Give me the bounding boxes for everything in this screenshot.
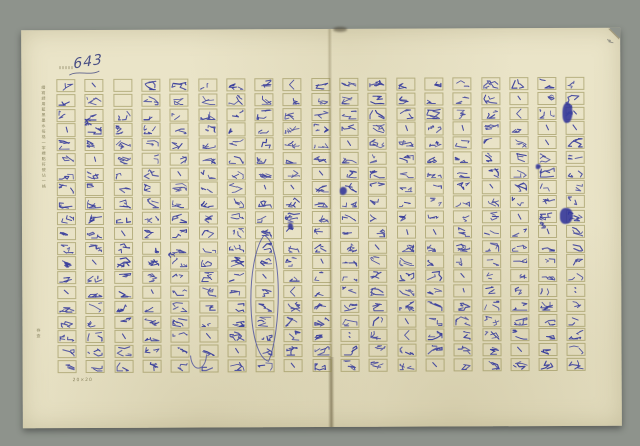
handwritten-char <box>454 123 471 134</box>
handwritten-char <box>58 272 75 283</box>
char-cell <box>226 78 245 91</box>
handwritten-char <box>86 183 103 194</box>
text-column <box>141 79 161 375</box>
char-cell <box>255 270 274 283</box>
handwritten-char <box>86 139 103 150</box>
char-cell <box>199 256 218 269</box>
handwritten-char <box>114 198 131 209</box>
handwritten-char <box>539 167 556 178</box>
handwritten-char <box>538 78 555 89</box>
char-cell <box>396 78 415 91</box>
handwritten-char <box>199 212 216 223</box>
char-cell <box>85 256 104 269</box>
char-cell <box>171 315 190 328</box>
handwritten-char <box>397 93 414 104</box>
handwritten-char <box>86 198 103 209</box>
char-cell <box>86 330 105 343</box>
char-cell <box>312 196 331 209</box>
char-cell <box>368 137 387 150</box>
handwritten-char <box>426 182 443 193</box>
handwritten-char <box>58 228 75 239</box>
handwritten-char <box>256 227 273 238</box>
char-cell <box>170 286 189 299</box>
char-cell <box>284 255 303 268</box>
handwritten-char <box>369 256 386 267</box>
char-cell <box>481 92 500 105</box>
char-cell <box>369 285 388 298</box>
handwritten-char <box>59 346 76 357</box>
char-cell <box>227 344 246 357</box>
handwritten-char <box>284 138 301 149</box>
handwritten-char <box>172 316 189 327</box>
handwritten-char <box>171 198 188 209</box>
char-cell <box>86 360 105 373</box>
handwritten-char <box>285 345 302 356</box>
char-cell <box>311 93 330 106</box>
handwritten-char <box>143 154 160 165</box>
handwritten-char <box>199 183 216 194</box>
handwritten-char <box>142 109 159 120</box>
char-cell <box>312 226 331 239</box>
handwritten-char <box>511 182 528 193</box>
handwritten-char <box>483 344 500 355</box>
char-cell <box>539 358 558 371</box>
char-cell <box>198 211 217 224</box>
grid-spec-print: 20×20 <box>73 378 93 383</box>
char-cell <box>255 300 274 313</box>
char-cell <box>567 284 586 297</box>
handwritten-char <box>228 257 245 268</box>
handwritten-char <box>200 242 217 253</box>
char-cell <box>283 93 302 106</box>
handwritten-char <box>341 256 358 267</box>
char-cell <box>256 359 275 372</box>
char-cell <box>312 344 331 357</box>
handwritten-char <box>285 286 302 297</box>
char-cell <box>566 121 585 134</box>
handwritten-char <box>171 183 188 194</box>
handwritten-char <box>455 315 472 326</box>
handwritten-char <box>172 301 189 312</box>
handwritten-char <box>510 152 527 163</box>
char-cell <box>198 123 217 136</box>
char-cell <box>312 300 331 313</box>
handwritten-char <box>482 167 499 178</box>
char-cell <box>283 196 302 209</box>
char-cell <box>284 270 303 283</box>
handwritten-char <box>564 109 573 117</box>
top-crease-mark <box>333 27 347 32</box>
char-cell <box>226 93 245 106</box>
char-cell <box>226 137 245 150</box>
handwritten-char <box>115 331 132 342</box>
char-cell <box>226 123 245 136</box>
char-cell <box>227 359 246 372</box>
handwritten-char <box>284 197 301 208</box>
char-cell <box>142 300 161 313</box>
char-cell <box>510 254 529 267</box>
char-cell <box>424 92 443 105</box>
handwritten-char <box>340 79 357 90</box>
handwritten-char <box>86 243 103 254</box>
handwritten-char <box>567 137 584 148</box>
handwritten-char <box>369 227 386 238</box>
handwritten-char <box>425 108 442 119</box>
char-cell <box>255 108 274 121</box>
char-cell <box>85 79 104 92</box>
char-cell <box>425 151 444 164</box>
handwritten-char <box>539 300 556 311</box>
handwritten-char <box>200 286 217 297</box>
handwritten-char <box>398 359 415 370</box>
handwritten-char <box>199 94 216 105</box>
char-cell <box>453 225 472 238</box>
char-cell <box>425 329 444 342</box>
handwritten-char <box>455 359 472 370</box>
handwritten-char <box>398 241 415 252</box>
handwritten-char <box>312 109 329 120</box>
handwritten-char <box>284 242 301 253</box>
manuscript-sheet: 643 繕寫請用藍黑墨水每格一字標點符號佔一格 存查 20×20 <box>21 28 622 429</box>
char-cell <box>538 195 557 208</box>
handwritten-char <box>482 211 499 222</box>
handwritten-char <box>539 270 556 281</box>
handwritten-char <box>171 168 188 179</box>
handwritten-char <box>370 330 387 341</box>
char-cell <box>284 329 303 342</box>
char-cell <box>227 197 246 210</box>
char-cell <box>114 345 133 358</box>
handwritten-char <box>511 196 528 207</box>
handwritten-char <box>454 93 471 104</box>
char-cell <box>567 299 586 312</box>
handwritten-char <box>58 257 75 268</box>
char-cell <box>510 181 529 194</box>
char-cell <box>453 196 472 209</box>
text-column <box>198 78 218 374</box>
char-cell <box>369 314 388 327</box>
char-cell <box>255 167 274 180</box>
char-cell <box>312 255 331 268</box>
handwritten-char <box>114 124 131 135</box>
char-cell <box>538 240 557 253</box>
handwritten-char <box>312 153 329 164</box>
handwritten-char <box>58 139 75 150</box>
handwritten-char <box>538 221 547 229</box>
handwritten-char <box>199 109 216 120</box>
char-cell <box>171 300 190 313</box>
handwritten-char <box>284 168 301 179</box>
char-cell <box>254 78 273 91</box>
handwritten-char <box>142 124 159 135</box>
char-cell <box>510 210 529 223</box>
char-cell <box>170 108 189 121</box>
handwritten-char <box>87 331 104 342</box>
char-cell <box>170 271 189 284</box>
char-cell <box>57 286 76 299</box>
handwritten-char <box>567 181 584 192</box>
char-cell <box>142 315 161 328</box>
char-cell <box>312 270 331 283</box>
char-cell <box>454 314 473 327</box>
char-cell <box>141 123 160 136</box>
handwritten-char <box>143 228 160 239</box>
handwritten-char <box>482 226 499 237</box>
char-cell <box>57 301 76 314</box>
handwritten-char <box>86 80 103 91</box>
char-cell <box>283 108 302 121</box>
char-cell <box>369 344 388 357</box>
handwritten-char <box>426 315 443 326</box>
char-cell <box>85 227 104 240</box>
handwritten-char <box>200 360 217 371</box>
handwritten-char <box>455 300 472 311</box>
left-margin-print: 繕寫請用藍黑墨水每格一字標點符號佔一格 <box>41 85 47 220</box>
handwritten-char <box>568 344 585 355</box>
char-cell <box>171 330 190 343</box>
handwritten-char <box>567 152 584 163</box>
char-cell <box>567 328 586 341</box>
handwritten-char <box>114 154 131 165</box>
char-cell <box>255 226 274 239</box>
char-cell <box>425 225 444 238</box>
handwritten-char <box>341 315 358 326</box>
char-cell <box>57 316 76 329</box>
char-cell <box>171 359 190 372</box>
char-cell <box>227 256 246 269</box>
char-cell <box>510 240 529 253</box>
char-cell <box>283 137 302 150</box>
char-cell <box>57 153 76 166</box>
char-cell <box>113 138 132 151</box>
char-cell <box>368 166 387 179</box>
handwritten-char <box>370 286 387 297</box>
char-cell <box>341 359 360 372</box>
handwritten-char <box>398 330 415 341</box>
char-cell <box>425 314 444 327</box>
handwritten-char <box>143 316 160 327</box>
char-cell <box>397 285 416 298</box>
char-cell <box>57 197 76 210</box>
handwritten-char <box>454 108 471 119</box>
handwritten-char <box>511 359 528 370</box>
char-cell <box>255 123 274 136</box>
char-cell <box>340 196 359 209</box>
handwritten-char <box>397 153 414 164</box>
handwritten-char <box>539 93 556 104</box>
char-cell <box>481 195 500 208</box>
handwritten-char <box>255 79 272 90</box>
char-cell <box>424 107 443 120</box>
char-cell <box>368 255 387 268</box>
handwritten-char <box>143 168 160 179</box>
char-cell <box>510 343 529 356</box>
handwritten-char <box>538 213 547 221</box>
char-cell <box>453 136 472 149</box>
char-cell <box>538 121 557 134</box>
char-cell <box>284 344 303 357</box>
handwritten-char <box>313 301 330 312</box>
char-cell <box>85 197 104 210</box>
char-cell <box>482 284 501 297</box>
handwritten-char <box>482 93 499 104</box>
handwritten-char <box>568 285 585 296</box>
handwritten-char <box>167 251 176 259</box>
handwritten-char <box>568 314 585 325</box>
text-column <box>509 77 529 373</box>
char-cell <box>566 151 585 164</box>
handwritten-char <box>540 329 557 340</box>
handwritten-char <box>58 124 75 135</box>
handwritten-char <box>256 138 273 149</box>
char-cell <box>198 226 217 239</box>
char-cell <box>142 167 161 180</box>
handwritten-char <box>539 255 556 266</box>
char-cell <box>311 181 330 194</box>
char-cell <box>509 136 528 149</box>
handwritten-char <box>171 124 188 135</box>
char-cell <box>510 225 529 238</box>
char-cell <box>199 271 218 284</box>
char-cell <box>340 270 359 283</box>
char-cell <box>170 138 189 151</box>
interlinear-annotation <box>538 213 547 229</box>
handwritten-char <box>369 241 386 252</box>
char-cell <box>567 343 586 356</box>
char-cell <box>340 152 359 165</box>
char-cell <box>227 241 246 254</box>
char-cell <box>453 269 472 282</box>
char-cell <box>227 300 246 313</box>
handwritten-char <box>568 300 585 311</box>
char-cell <box>57 138 76 151</box>
char-cell <box>481 107 500 120</box>
text-column <box>170 79 190 375</box>
handwritten-char <box>114 183 131 194</box>
handwritten-char <box>227 124 244 135</box>
handwritten-char <box>369 153 386 164</box>
char-cell <box>142 330 161 343</box>
char-cell <box>255 152 274 165</box>
char-cell <box>567 269 586 282</box>
handwritten-char <box>426 256 443 267</box>
char-cell <box>199 359 218 372</box>
handwritten-char <box>228 183 245 194</box>
char-cell <box>227 270 246 283</box>
handwritten-char <box>568 255 585 266</box>
handwritten-char <box>256 94 273 105</box>
char-cell <box>312 241 331 254</box>
char-cell <box>170 152 189 165</box>
char-cell <box>368 211 387 224</box>
handwritten-char <box>341 241 358 252</box>
char-cell <box>198 93 217 106</box>
char-cell <box>397 225 416 238</box>
handwritten-char <box>398 226 415 237</box>
char-cell <box>311 137 330 150</box>
handwritten-char <box>199 124 216 135</box>
char-cell <box>481 225 500 238</box>
text-column <box>56 79 76 375</box>
char-cell <box>56 109 75 122</box>
char-cell <box>142 153 161 166</box>
handwritten-char <box>115 287 132 298</box>
char-cell <box>142 286 161 299</box>
handwritten-char <box>199 168 216 179</box>
char-cell <box>397 299 416 312</box>
handwritten-char <box>398 256 415 267</box>
handwritten-char <box>313 286 330 297</box>
handwritten-char <box>342 360 359 371</box>
handwritten-char <box>200 301 217 312</box>
char-cell <box>113 168 132 181</box>
char-cell <box>113 94 132 107</box>
handwritten-char <box>171 227 188 238</box>
handwritten-char <box>483 315 500 326</box>
handwritten-char <box>284 227 301 238</box>
handwritten-char <box>284 109 301 120</box>
char-cell <box>396 92 415 105</box>
char-cell <box>142 227 161 240</box>
char-cell <box>453 107 472 120</box>
char-cell <box>283 78 302 91</box>
handwritten-char <box>228 345 245 356</box>
handwritten-char <box>115 302 132 313</box>
handwritten-char <box>341 138 358 149</box>
char-cell <box>256 344 275 357</box>
handwritten-char <box>256 212 273 223</box>
char-cell <box>454 358 473 371</box>
handwritten-char <box>313 227 330 238</box>
handwritten-char <box>284 123 301 134</box>
char-cell <box>368 240 387 253</box>
char-cell <box>255 211 274 224</box>
char-cell <box>284 359 303 372</box>
handwritten-char <box>58 198 75 209</box>
handwritten-char <box>227 109 244 120</box>
handwritten-char <box>511 344 528 355</box>
handwritten-char <box>86 169 103 180</box>
handwritten-char <box>398 315 415 326</box>
char-cell <box>114 315 133 328</box>
char-cell <box>227 226 246 239</box>
handwritten-char <box>398 345 415 356</box>
handwritten-char <box>482 152 499 163</box>
char-cell <box>453 210 472 223</box>
handwritten-char <box>200 331 217 342</box>
handwritten-char <box>397 182 414 193</box>
handwritten-char <box>369 182 386 193</box>
char-cell <box>397 358 416 371</box>
char-cell <box>538 254 557 267</box>
char-cell <box>510 314 529 327</box>
char-cell <box>482 269 501 282</box>
char-cell <box>85 168 104 181</box>
handwritten-char <box>200 272 217 283</box>
handwritten-char <box>539 285 556 296</box>
handwritten-char <box>58 154 75 165</box>
char-cell <box>368 92 387 105</box>
handwritten-char <box>455 344 472 355</box>
handwritten-char <box>539 241 556 252</box>
handwritten-char <box>86 228 103 239</box>
char-cell <box>85 138 104 151</box>
handwritten-char <box>370 300 387 311</box>
char-cell <box>481 210 500 223</box>
handwritten-char <box>397 123 414 134</box>
char-cell <box>114 301 133 314</box>
char-cell <box>86 301 105 314</box>
